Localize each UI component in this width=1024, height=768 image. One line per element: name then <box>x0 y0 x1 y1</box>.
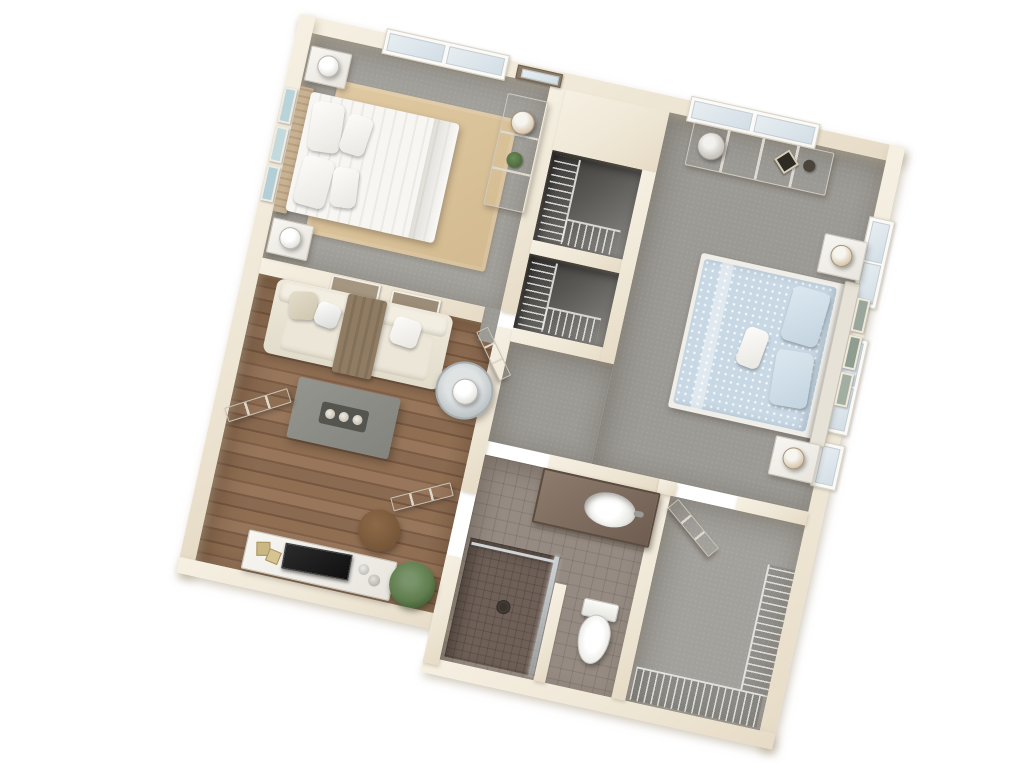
floorplan-canvas <box>0 0 1024 768</box>
candle-1 <box>324 408 336 420</box>
apartment-unit <box>166 14 905 753</box>
side-table-lamp <box>450 376 481 407</box>
vanity-sink <box>581 488 639 532</box>
console-vase-2 <box>367 573 381 587</box>
candle-2 <box>338 411 350 423</box>
candle-tray <box>318 401 370 433</box>
console-gold-frame-2 <box>265 548 282 565</box>
bedroom1-pillow-4 <box>329 166 360 209</box>
bedroom2-bed <box>668 253 858 442</box>
console-vase-1 <box>357 563 370 576</box>
candle-3 <box>352 414 364 426</box>
shower-drain <box>495 599 512 616</box>
